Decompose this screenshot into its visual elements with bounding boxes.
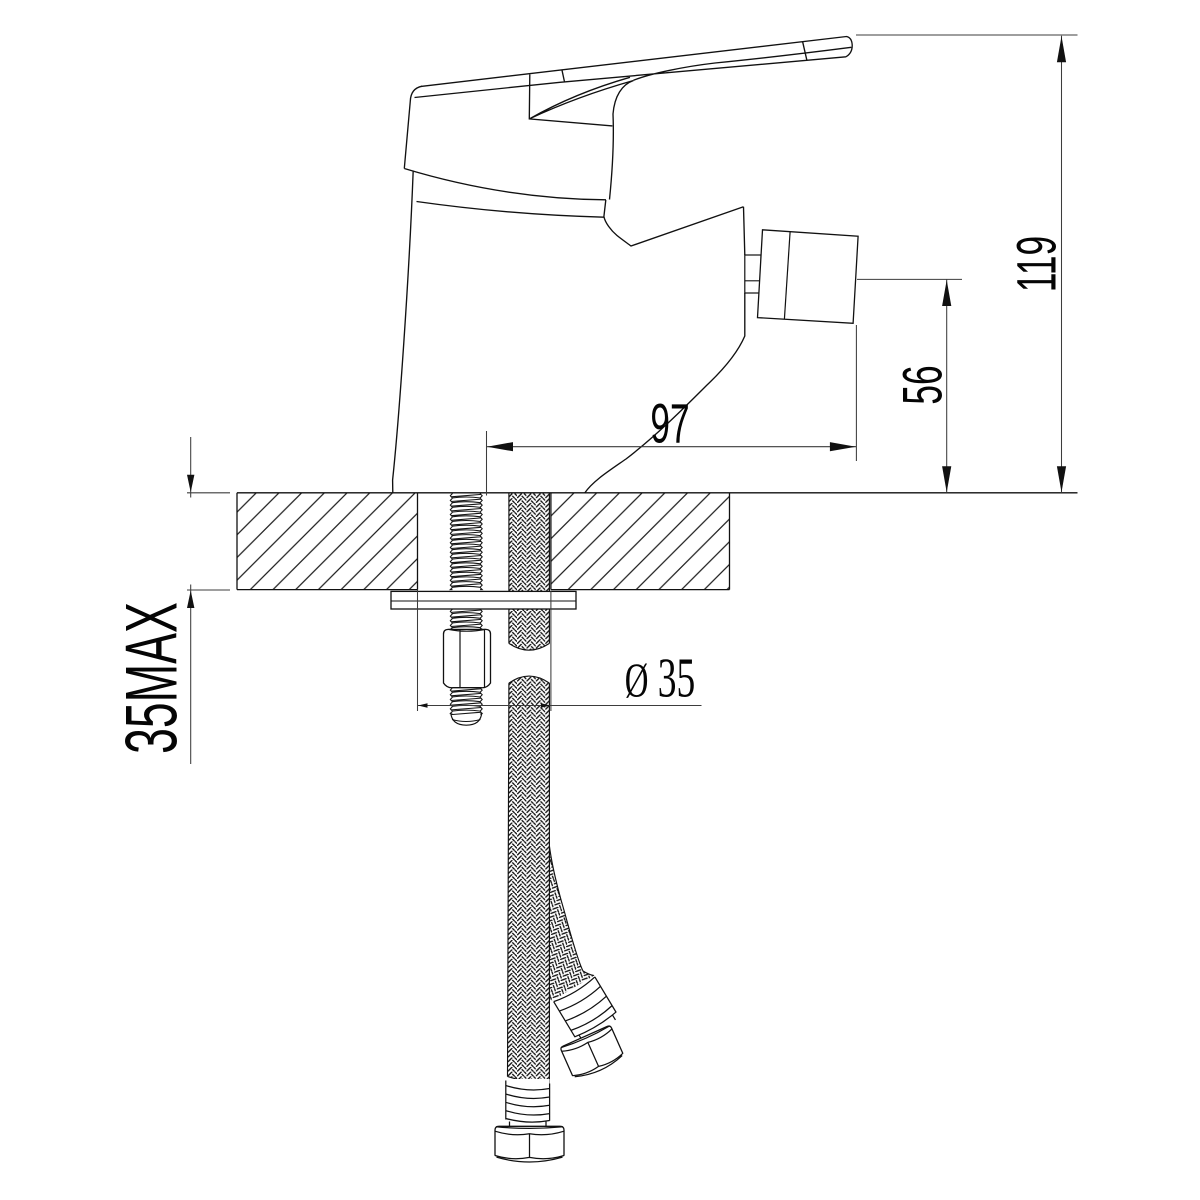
svg-text:35MAX: 35MAX — [111, 602, 192, 754]
svg-text:97: 97 — [650, 392, 689, 454]
svg-text:56: 56 — [891, 365, 953, 404]
svg-text:Ø 35: Ø 35 — [625, 648, 696, 709]
svg-text:119: 119 — [1005, 236, 1067, 292]
